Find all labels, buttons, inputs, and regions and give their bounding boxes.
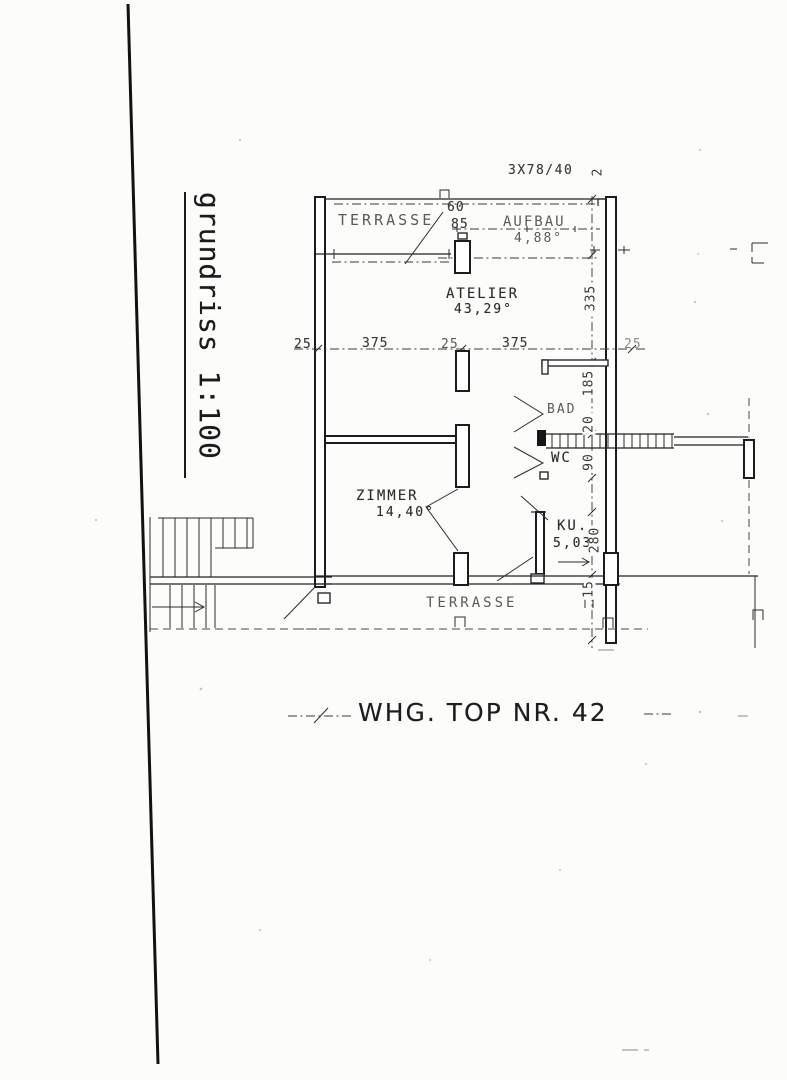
dimension-label-h2: 375: [362, 337, 388, 350]
terrace-posts: [296, 598, 763, 629]
dimension-label-h1: 25: [294, 338, 312, 351]
dimension-label-chimney-depth: 85: [451, 218, 469, 231]
dimension-label-h3: 25: [441, 338, 459, 351]
dimension-label-v4: 90: [583, 451, 596, 473]
room-label-aufbau: AUFBAU: [503, 215, 566, 229]
floorplan-drawing: [0, 0, 787, 1080]
area-label-atelier: 43,29°: [454, 303, 513, 316]
room-label-bad: BAD: [547, 403, 576, 416]
right-edge-marks: [730, 243, 768, 263]
horizontal-dimension-line: [294, 345, 648, 353]
dimension-label-h4: 375: [502, 337, 528, 350]
dimension-label-v5: 280: [589, 525, 602, 555]
dimension-label-v1: 335: [585, 283, 598, 313]
room-label-atelier: ATELIER: [446, 287, 519, 301]
dimension-label-v2: 185: [583, 368, 596, 398]
page-edge-line: [128, 4, 158, 1064]
room-label-zimmer: ZIMMER: [356, 489, 419, 503]
area-label-zimmer: 14,40°: [376, 506, 435, 519]
south-wall: [284, 553, 758, 648]
staircase: [150, 517, 332, 632]
room-label-kueche: KU.: [557, 519, 588, 533]
scanned-floorplan-page: grundriss 1:100 3X78/40 2 TERRASSE AUFBA…: [0, 0, 787, 1080]
room-label-wc: WC: [551, 451, 572, 465]
room-label-terrasse-bottom: TERRASSE: [426, 596, 517, 610]
dimension-label-v3: 20: [583, 413, 596, 435]
dimension-label-h5: 25: [624, 338, 642, 351]
plan-caption: WHG. TOP NR. 42: [358, 698, 608, 727]
window-size-annotation: 3X78/40: [508, 164, 573, 177]
dimension-label-v0: 2: [592, 166, 605, 179]
room-label-terrasse-top: TERRASSE: [338, 213, 434, 228]
dimension-label-v6: 15: [583, 578, 596, 600]
door-swings: [426, 396, 589, 581]
drawing-title: grundriss 1:100: [184, 192, 226, 478]
area-label-aufbau: 4,88°: [514, 232, 563, 245]
dimension-label-chimney-width: 60: [447, 201, 465, 214]
